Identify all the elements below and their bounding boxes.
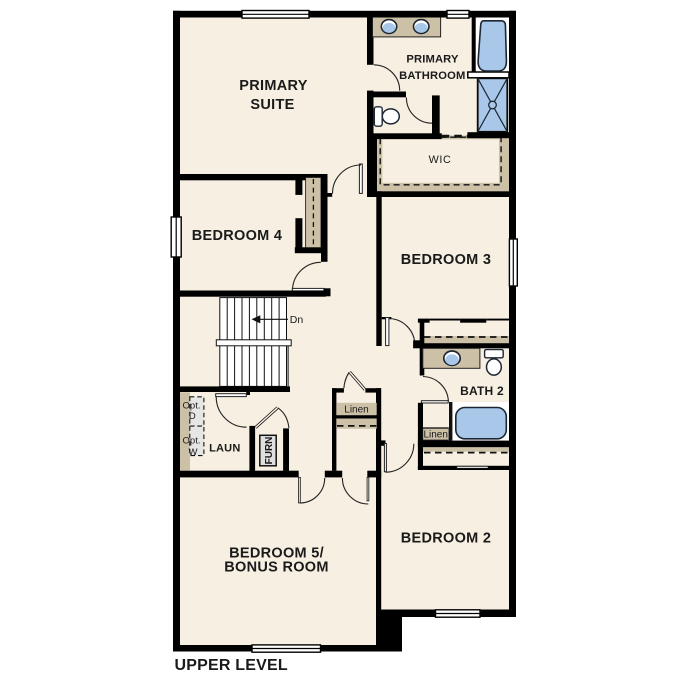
svg-text:Opt.: Opt.: [183, 400, 201, 411]
svg-text:BONUS ROOM: BONUS ROOM: [224, 560, 329, 576]
svg-text:LAUN: LAUN: [209, 443, 240, 455]
svg-text:PRIMARY: PRIMARY: [406, 54, 459, 66]
svg-text:BEDROOM 2: BEDROOM 2: [401, 531, 492, 547]
svg-text:W: W: [189, 447, 198, 458]
svg-text:WIC: WIC: [429, 154, 452, 166]
svg-text:Opt.: Opt.: [183, 435, 201, 446]
svg-text:BATH 2: BATH 2: [460, 384, 504, 398]
svg-text:SUITE: SUITE: [250, 97, 294, 113]
svg-text:BATHROOM: BATHROOM: [399, 70, 465, 82]
svg-text:PRIMARY: PRIMARY: [239, 78, 307, 94]
svg-text:FURN: FURN: [264, 437, 275, 465]
svg-text:BEDROOM 4: BEDROOM 4: [192, 228, 283, 244]
svg-text:UPPER LEVEL: UPPER LEVEL: [175, 657, 288, 674]
svg-text:Linen: Linen: [344, 404, 368, 415]
svg-text:Linen: Linen: [423, 429, 447, 440]
svg-text:D: D: [189, 411, 196, 422]
svg-text:BEDROOM 3: BEDROOM 3: [401, 252, 492, 268]
svg-text:Dn: Dn: [290, 314, 304, 326]
